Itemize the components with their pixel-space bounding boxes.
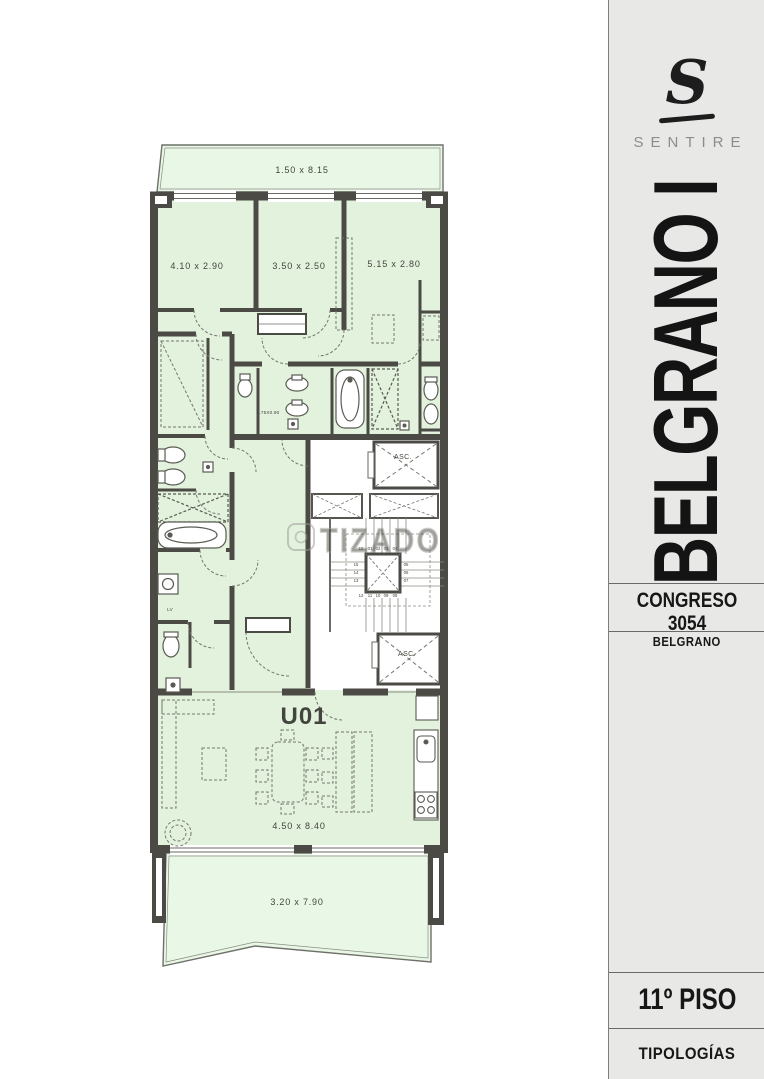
balcony-top-dimension: 1.50 x 8.15: [275, 165, 328, 175]
project-neighborhood: BELGRANO: [609, 635, 764, 650]
address-block: CONGRESO 3054 BELGRANO: [609, 583, 764, 632]
svg-text:13: 13: [354, 578, 359, 583]
svg-text:12: 12: [359, 593, 364, 598]
unit-label: U01: [280, 703, 327, 730]
brand-name: SENTIRE: [609, 134, 764, 151]
svg-text:09: 09: [384, 593, 389, 598]
living-dimension: 4.50 x 8.40: [272, 821, 325, 831]
project-address: CONGRESO 3054: [609, 589, 764, 635]
bedroom-1-dimension: 4.10 x 2.90: [170, 261, 223, 271]
laundry-label: LV: [167, 607, 173, 612]
svg-text:05: 05: [404, 562, 409, 567]
svg-text:11: 11: [368, 593, 373, 598]
watermark-text: TIZADO: [320, 522, 441, 560]
svg-text:10: 10: [376, 593, 381, 598]
svg-text:08: 08: [393, 593, 398, 598]
elevator-upper-label: ASC.: [394, 454, 412, 461]
balcony-bottom: 3.20 x 7.90: [152, 853, 444, 966]
bedroom-2-dimension: 3.50 x 2.50: [272, 261, 325, 271]
typology-sheet: 1.50 x 8.15 3.20 x 7.90: [0, 0, 764, 1079]
small-bathroom-dimension: 1.75X0.90: [257, 410, 280, 415]
svg-text:07: 07: [404, 578, 409, 583]
floor-block: 11º PISO TIPOLOGÍAS: [609, 972, 764, 1079]
svg-text:06: 06: [404, 570, 409, 575]
sidebar: S SENTIRE BELGRANO I CONGRESO 3054 BELGR…: [608, 0, 764, 1079]
floor-label: 11º PISO: [609, 973, 764, 1028]
balcony-bottom-dimension: 3.20 x 7.90: [270, 897, 323, 907]
brand-logo: S SENTIRE: [609, 52, 764, 151]
bedroom-3-dimension: 5.15 x 2.80: [367, 259, 420, 269]
elevator-lower-label: ASC.: [398, 651, 416, 658]
project-title-vertical: BELGRANO I: [609, 196, 764, 568]
svg-text:14: 14: [354, 570, 359, 575]
svg-text:15: 15: [354, 562, 359, 567]
sentire-logo-icon: S: [609, 52, 764, 114]
balcony-top: 1.50 x 8.15: [157, 145, 443, 192]
sheet-type-label: TIPOLOGÍAS: [609, 1028, 764, 1079]
floor-plan: 1.50 x 8.15 3.20 x 7.90: [0, 0, 608, 1079]
